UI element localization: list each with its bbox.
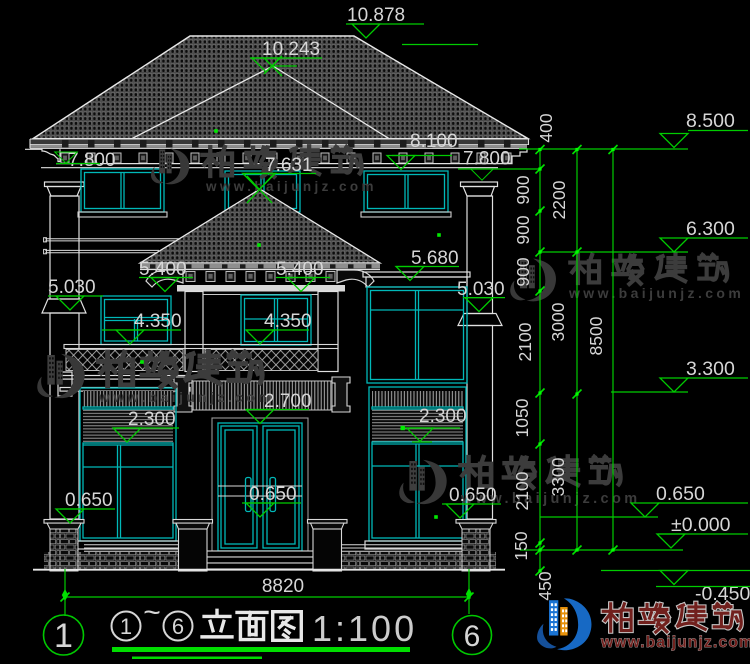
svg-text:7.800: 7.800 [463,149,511,170]
svg-text:900: 900 [513,215,533,244]
svg-text:2200: 2200 [549,180,569,219]
svg-text:2100: 2100 [515,322,535,361]
svg-text:900: 900 [513,175,533,204]
svg-text:6: 6 [172,614,184,639]
svg-text:8500: 8500 [586,316,606,355]
svg-text:5.030: 5.030 [457,279,505,300]
svg-text:10.878: 10.878 [347,5,405,26]
svg-text:8.100: 8.100 [410,131,458,152]
svg-text:0.650: 0.650 [65,490,113,511]
svg-text:0.650: 0.650 [449,485,497,506]
svg-text:www.baijunjz.com: www.baijunjz.com [205,179,377,194]
svg-text:2.300: 2.300 [128,409,176,430]
svg-text:www.baijunjz.com: www.baijunjz.com [600,634,750,651]
svg-text:400: 400 [536,113,556,142]
svg-text:3000: 3000 [548,302,568,341]
svg-text:10.243: 10.243 [262,39,320,60]
svg-text:4.350: 4.350 [134,311,182,332]
svg-text:1050: 1050 [512,398,532,437]
svg-text:±0.000: ±0.000 [671,514,731,536]
svg-text:~: ~ [143,596,161,629]
svg-text:0.650: 0.650 [656,483,705,505]
svg-text:3.300: 3.300 [686,358,735,380]
svg-text:1: 1 [54,617,73,655]
svg-text:8.500: 8.500 [686,110,735,132]
svg-text:450: 450 [535,571,555,600]
svg-text:www.baijunjz.com: www.baijunjz.com [98,389,274,405]
svg-text:3300: 3300 [548,457,568,496]
svg-text:2100: 2100 [512,471,532,510]
svg-text:8820: 8820 [262,576,304,597]
svg-text:2.300: 2.300 [419,406,467,427]
svg-text:150: 150 [511,531,531,560]
svg-text:6.300: 6.300 [686,218,735,240]
svg-text:www.baijunjz.com: www.baijunjz.com [568,285,744,301]
svg-text:5.030: 5.030 [48,277,96,298]
svg-text:900: 900 [513,257,533,286]
svg-text:0.650: 0.650 [249,484,297,505]
svg-text:4.350: 4.350 [264,311,312,332]
svg-text:7.800: 7.800 [68,150,116,171]
svg-text:1:100: 1:100 [312,608,417,649]
svg-text:1: 1 [120,614,132,639]
svg-text:6: 6 [464,620,481,653]
